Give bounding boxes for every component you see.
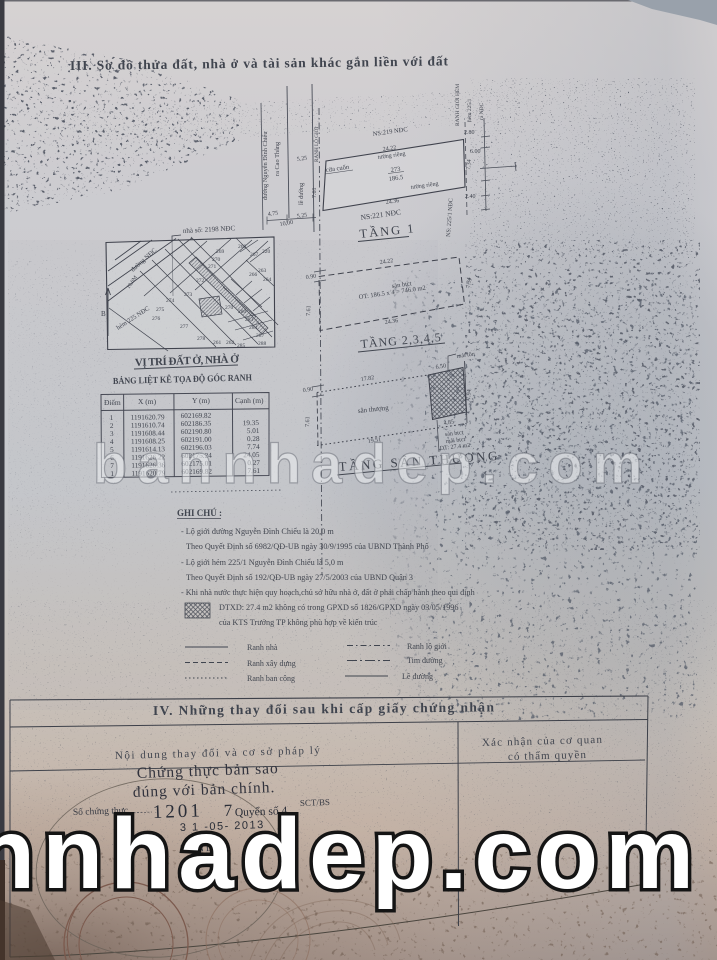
svg-text:269: 269 (216, 249, 225, 255)
svg-text:ra NĐC: ra NĐC (479, 102, 485, 120)
svg-text:RANH GIỚI HẺM: RANH GIỚI HẺM (453, 84, 461, 126)
svg-text:2.40: 2.40 (465, 194, 476, 200)
svg-text:6.00: 6.00 (470, 149, 481, 155)
svg-text:Theo Quyết Định số 192/QĐ-UB n: Theo Quyết Định số 192/QĐ-UB ngày 27/5/2… (186, 573, 413, 582)
svg-text:262: 262 (226, 340, 235, 346)
svg-text:Y (m): Y (m) (192, 396, 210, 405)
svg-text:Ranh lộ giới: Ranh lộ giới (407, 642, 448, 651)
svg-text:288: 288 (258, 341, 267, 347)
svg-text:Ranh nhà: Ranh nhà (247, 643, 278, 652)
svg-text:285: 285 (237, 343, 246, 349)
svg-text:280: 280 (238, 309, 247, 315)
svg-text:- Khi nhà nước thực hiện quy h: - Khi nhà nước thực hiện quy hoạch,chủ s… (181, 588, 475, 597)
svg-text:hẻm 225/1: hẻm 225/1 (467, 98, 473, 122)
svg-text:1: 1 (110, 414, 114, 422)
svg-text:7.34: 7.34 (466, 159, 473, 170)
svg-text:Điểm: Điểm (104, 398, 121, 407)
svg-text:7.34: 7.34 (466, 277, 473, 288)
svg-text:Cạnh (m): Cạnh (m) (235, 396, 264, 405)
svg-text:267: 267 (250, 252, 259, 258)
svg-text:263: 263 (258, 268, 267, 274)
svg-text:ra Cao Thắng: ra Cao Thắng (274, 141, 281, 176)
svg-text:bannhadep.com: bannhadep.com (93, 432, 652, 495)
svg-text:7.61: 7.61 (305, 416, 311, 427)
svg-text:274: 274 (166, 298, 175, 304)
svg-text:DTXD: 27.4 m2 không có trong G: DTXD: 27.4 m2 không có trong GPXD số 182… (219, 603, 458, 612)
svg-text:19.35: 19.35 (243, 419, 260, 427)
svg-text:7.94: 7.94 (466, 389, 473, 400)
svg-text:277: 277 (180, 324, 189, 330)
svg-text:270: 270 (212, 257, 221, 263)
svg-text:270: 270 (225, 305, 234, 311)
svg-text:283: 283 (245, 317, 254, 323)
svg-text:220: 220 (262, 249, 271, 255)
svg-text:276: 276 (152, 316, 161, 322)
svg-text:đường Nguyễn Đình Chiểu: đường Nguyễn Đình Chiểu (262, 131, 269, 200)
svg-text:Theo Quyết Định số 6982/QĐ-UB: Theo Quyết Định số 6982/QĐ-UB ngày 30/9/… (186, 542, 429, 551)
svg-text:268: 268 (238, 244, 247, 250)
svg-text:Lề đường: Lề đường (402, 672, 433, 681)
svg-text:261: 261 (213, 340, 222, 346)
svg-text:2.80: 2.80 (464, 130, 475, 136)
svg-text:- Lộ giới đường Nguyễn Đình Ch: - Lộ giới đường Nguyễn Đình Chiểu là 20,… (181, 527, 334, 536)
svg-text:271: 271 (208, 264, 217, 270)
svg-text:Tim đường: Tim đường (407, 656, 443, 665)
svg-text:GHI CHÚ :: GHI CHÚ : (177, 508, 222, 518)
svg-text:275: 275 (156, 307, 165, 313)
svg-text:287: 287 (256, 333, 265, 339)
svg-text:266: 266 (249, 272, 258, 278)
svg-text:Ranh xây dựng: Ranh xây dựng (247, 659, 296, 668)
svg-text:273: 273 (184, 292, 193, 298)
svg-text:7.61: 7.61 (312, 188, 318, 199)
svg-text:264: 264 (263, 277, 272, 283)
svg-text:lề đường: lề đường (298, 182, 305, 205)
svg-text:7.61: 7.61 (306, 305, 312, 316)
svg-text:284: 284 (249, 325, 258, 331)
svg-text:của KTS Trưởng TP không phù hợ: của KTS Trưởng TP không phù hợp về kiến … (219, 618, 378, 627)
svg-text:- Lộ giới hẻm 225/1 Nguyễn Đìn: - Lộ giới hẻm 225/1 Nguyễn Đình Chiểu là… (181, 558, 344, 567)
svg-text:278: 278 (197, 336, 206, 342)
svg-text:272: 272 (196, 278, 205, 284)
svg-text:nnhadep.com: nnhadep.com (0, 798, 701, 910)
svg-text:B: B (101, 310, 106, 318)
svg-text:2: 2 (110, 422, 114, 430)
svg-text:Ranh ban công: Ranh ban công (247, 674, 295, 683)
svg-text:X (m): X (m) (138, 397, 157, 406)
